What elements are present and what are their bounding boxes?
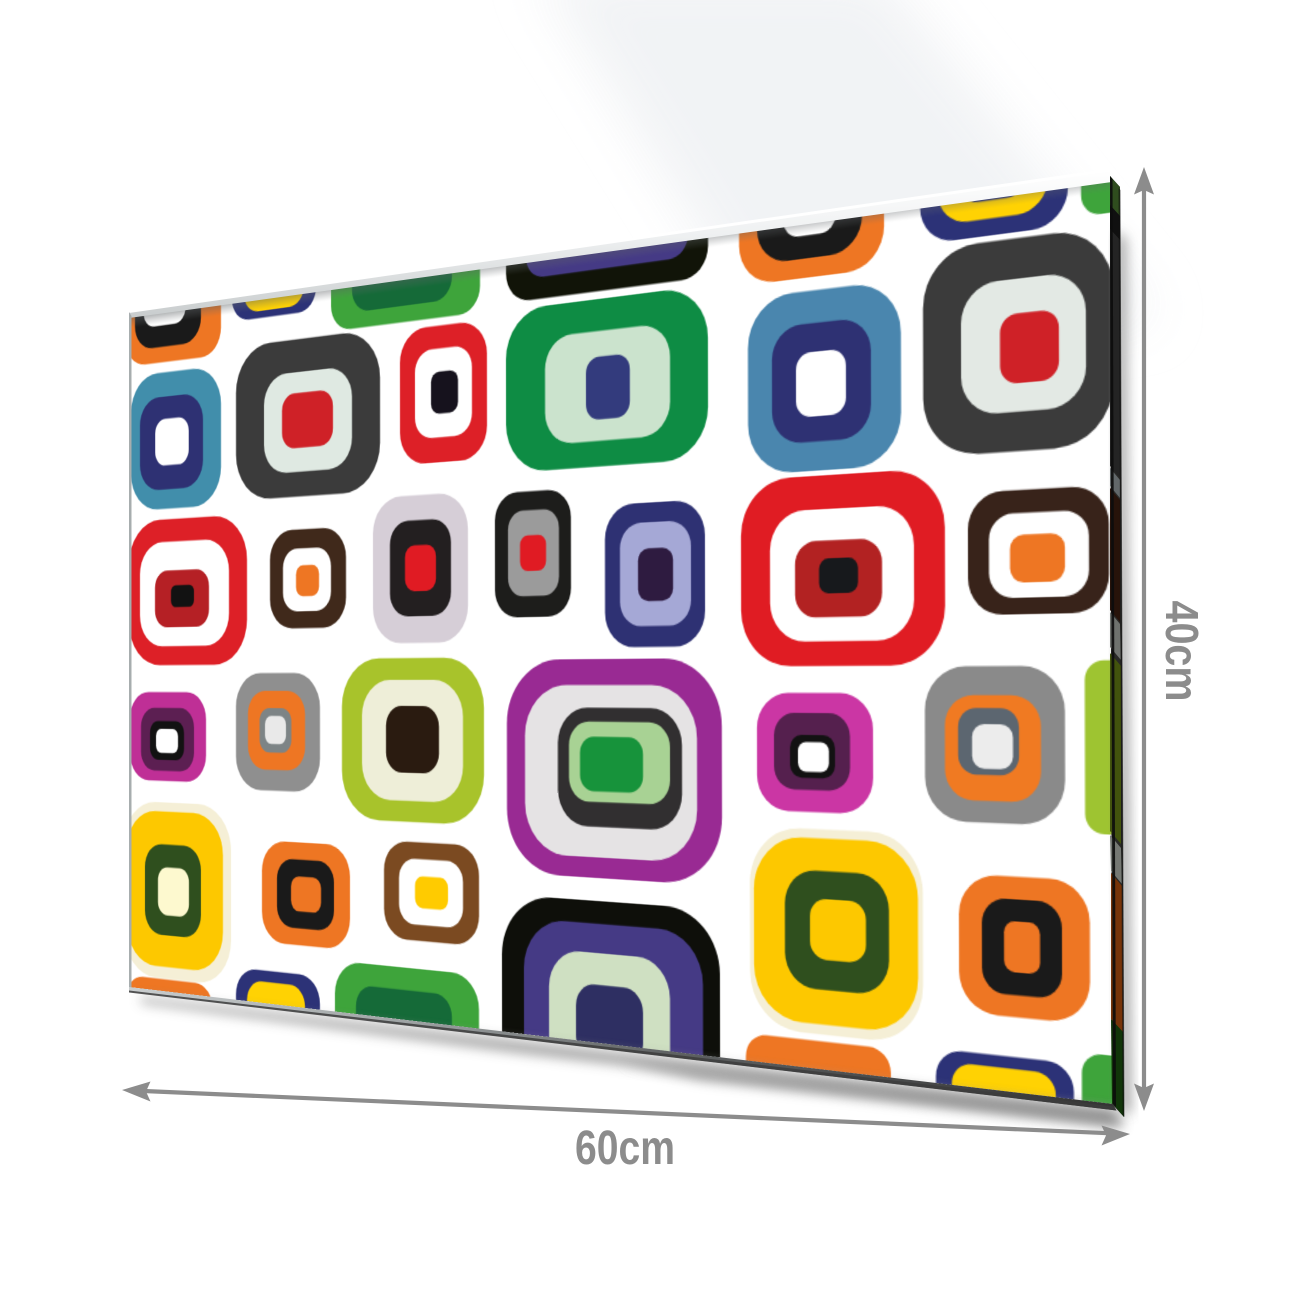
svg-text:40cm: 40cm (1156, 601, 1208, 702)
svg-text:60cm: 60cm (575, 1122, 675, 1175)
